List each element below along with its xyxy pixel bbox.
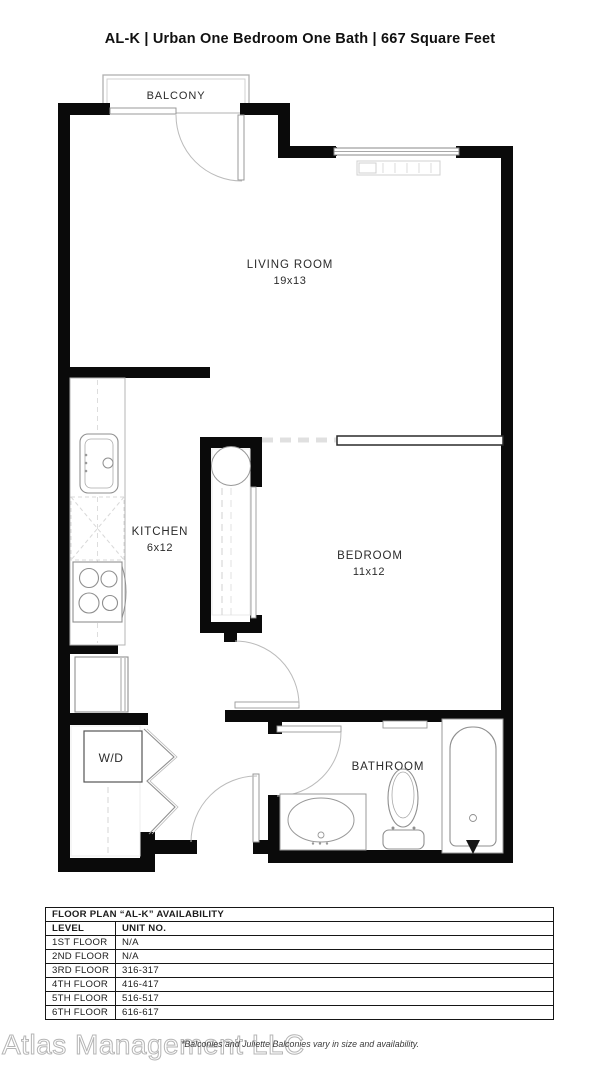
unit-cell: 616-617	[116, 1006, 554, 1020]
entry-door-panel	[253, 774, 259, 842]
closet-door-panel	[251, 487, 256, 618]
unit-cell: N/A	[116, 950, 554, 964]
entry-door	[191, 774, 259, 842]
col-header-unit: UNIT NO.	[116, 922, 554, 936]
burner	[79, 593, 99, 613]
balcony-door-arc	[176, 115, 242, 181]
kitchen-label: KITCHEN	[132, 526, 189, 538]
wall-closet-left	[200, 437, 211, 633]
refrigerator	[75, 657, 128, 712]
burner	[80, 569, 99, 588]
bedroom-label: BEDROOM	[337, 550, 403, 562]
balcony-fixed-panel	[110, 108, 176, 114]
unit-cell: 316-317	[116, 964, 554, 978]
vanity	[280, 794, 366, 850]
vanity-knob	[312, 842, 314, 844]
living-room-window	[334, 148, 459, 175]
wall-step-horizontal	[278, 146, 336, 158]
bathroom: BATHROOM	[277, 719, 503, 854]
bathroom-door-panel	[277, 726, 341, 732]
living-room-dims: 19x13	[274, 275, 307, 287]
entry-door-arc	[191, 776, 257, 842]
wall-bottom-left	[58, 858, 155, 872]
level-cell: 6TH FLOOR	[46, 1006, 116, 1020]
wall-closet-right-top	[250, 437, 262, 487]
bathroom-label: BATHROOM	[352, 761, 425, 773]
tub-basin	[450, 727, 496, 846]
heater-grid	[383, 163, 431, 173]
sink-knob	[85, 454, 88, 457]
table-row: 1ST FLOOR N/A	[46, 936, 554, 950]
bedroom-door-panel	[235, 702, 299, 708]
floor-plan-drawing: BALCONY	[0, 0, 600, 900]
bathroom-door-arc	[277, 732, 341, 796]
living-room-label: LIVING ROOM	[247, 259, 334, 271]
balcony-label: BALCONY	[147, 90, 206, 102]
level-cell: 2ND FLOOR	[46, 950, 116, 964]
level-cell: 1ST FLOOR	[46, 936, 116, 950]
bedroom-closet	[212, 447, 257, 619]
bifold-doors-inner	[147, 729, 178, 834]
balcony-door	[110, 108, 244, 181]
bedroom-door-arc	[235, 641, 299, 705]
level-cell: 4TH FLOOR	[46, 978, 116, 992]
sink-knob	[85, 470, 88, 473]
balcony-disclaimer: *Balconies and Juliette Balconies vary i…	[0, 1039, 600, 1049]
level-cell: 3RD FLOOR	[46, 964, 116, 978]
toilet-bolt	[392, 827, 395, 830]
sink-faucet	[103, 458, 113, 468]
balcony-door-panel	[238, 115, 244, 180]
unit-cell: N/A	[116, 936, 554, 950]
table-header-row: LEVEL UNIT NO.	[46, 922, 554, 936]
table-row: 3RD FLOOR 316-317	[46, 964, 554, 978]
water-heater	[212, 447, 251, 486]
heater-box	[359, 163, 376, 173]
wall-fridge-stub	[70, 645, 118, 654]
table-row: 5TH FLOOR 516-517	[46, 992, 554, 1006]
stove	[73, 562, 126, 622]
table-title-row: FLOOR PLAN “AL-K” AVAILABILITY	[46, 908, 554, 922]
kitchen: KITCHEN 6x12	[70, 378, 188, 712]
wall-left	[58, 103, 70, 872]
toilet-tank	[383, 830, 424, 849]
availability-table: FLOOR PLAN “AL-K” AVAILABILITY LEVEL UNI…	[45, 907, 554, 1020]
wall-entry-left	[155, 840, 197, 854]
toilet-bolt	[413, 827, 416, 830]
wall-top-left	[58, 103, 110, 115]
bedroom-dims: 11x12	[353, 566, 385, 578]
stove-body	[73, 562, 122, 622]
wall-wd-top	[58, 713, 148, 725]
balcony: BALCONY	[103, 75, 249, 113]
table-row: 4TH FLOOR 416-417	[46, 978, 554, 992]
toilet	[383, 769, 424, 849]
bathroom-shelf	[383, 721, 427, 728]
level-cell: 5TH FLOOR	[46, 992, 116, 1006]
col-header-level: LEVEL	[46, 922, 116, 936]
vanity-knob	[319, 842, 321, 844]
bedroom-sliding-door	[262, 436, 503, 445]
sliding-door-panel	[337, 436, 503, 445]
unit-cell: 516-517	[116, 992, 554, 1006]
sink-knob	[85, 462, 88, 465]
table-row: 6TH FLOOR 616-617	[46, 1006, 554, 1020]
kitchen-dims: 6x12	[147, 542, 173, 554]
table-row: 2ND FLOOR N/A	[46, 950, 554, 964]
table-title: FLOOR PLAN “AL-K” AVAILABILITY	[46, 908, 554, 922]
bedroom-door	[235, 641, 299, 708]
wall-kitchen-stub	[70, 367, 210, 378]
bifold-doors	[144, 729, 175, 834]
bathtub	[442, 719, 503, 854]
unit-cell: 416-417	[116, 978, 554, 992]
laundry-area: W/D	[71, 726, 178, 856]
fridge-body	[75, 657, 128, 712]
burner	[103, 596, 118, 611]
wd-label: W/D	[99, 751, 124, 765]
burner	[101, 571, 117, 587]
vanity-knob	[326, 842, 328, 844]
vanity-sink	[288, 798, 354, 842]
floor-plan-page: AL-K | Urban One Bedroom One Bath | 667 …	[0, 0, 600, 1080]
